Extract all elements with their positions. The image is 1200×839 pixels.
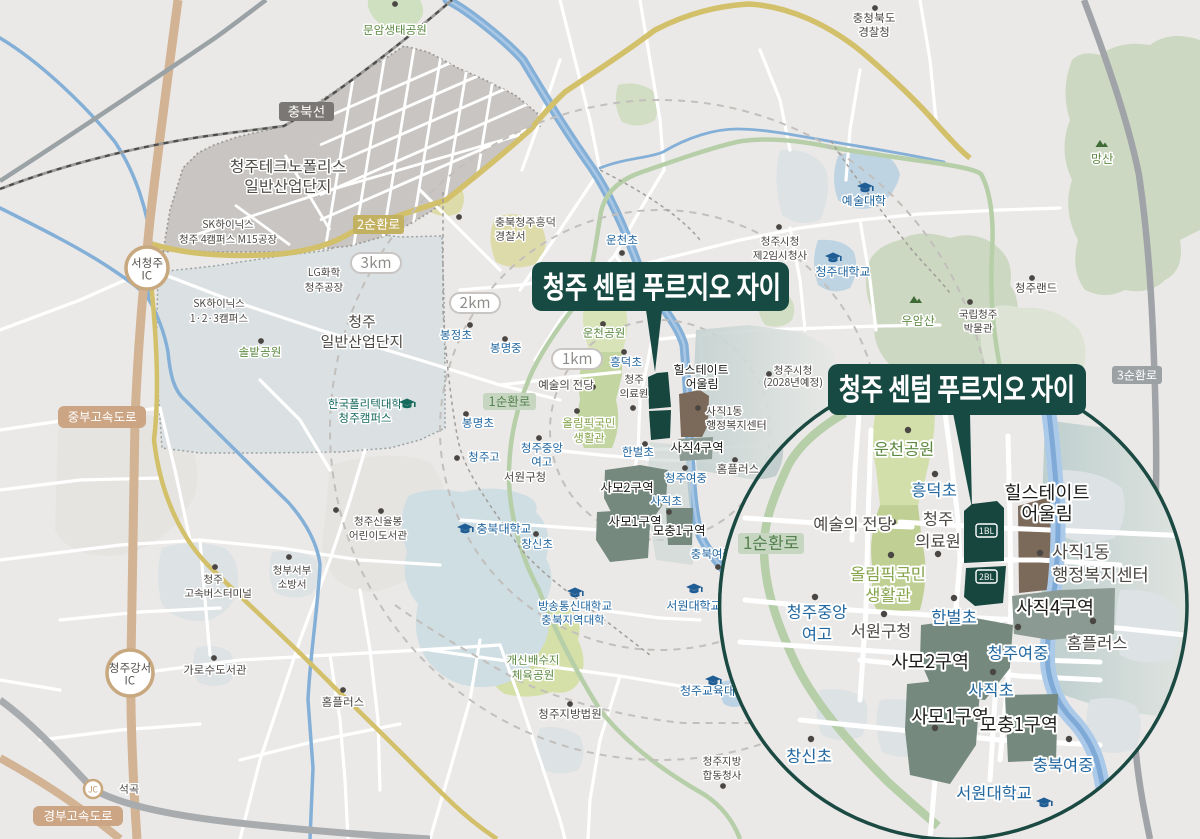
svg-text:운천공원: 운천공원 xyxy=(874,436,935,460)
svg-text:사모2구역: 사모2구역 xyxy=(601,477,654,496)
svg-text:일반산업단지: 일반산업단지 xyxy=(244,174,331,197)
svg-text:경부고속도로: 경부고속도로 xyxy=(43,806,112,825)
svg-text:청주여중: 청주여중 xyxy=(988,640,1049,664)
svg-text:생활관: 생활관 xyxy=(573,430,605,446)
svg-text:(2028년예정): (2028년예정) xyxy=(763,375,822,390)
svg-text:어린이도서관: 어린이도서관 xyxy=(349,528,407,543)
svg-text:충북여중: 충북여중 xyxy=(1033,752,1094,776)
svg-text:사모1구역: 사모1구역 xyxy=(911,703,989,729)
svg-text:합동청사: 합동청사 xyxy=(703,768,742,783)
svg-text:한벌초: 한벌초 xyxy=(931,604,977,628)
svg-text:충북대학교: 충북대학교 xyxy=(476,520,531,537)
svg-text:서원대학교: 서원대학교 xyxy=(666,597,721,614)
svg-text:IC: IC xyxy=(125,673,136,689)
svg-text:사직초: 사직초 xyxy=(650,493,682,509)
svg-text:한벌초: 한벌초 xyxy=(622,444,654,460)
svg-text:예술의 전당: 예술의 전당 xyxy=(813,511,893,535)
svg-text:SK하이닉스: SK하이닉스 xyxy=(202,217,254,232)
svg-text:청주고: 청주고 xyxy=(468,449,500,465)
svg-text:홈플러스: 홈플러스 xyxy=(322,694,364,710)
svg-text:청주: 청주 xyxy=(624,372,643,387)
svg-text:체육공원: 체육공원 xyxy=(512,667,554,683)
svg-text:청주시청: 청주시청 xyxy=(761,234,800,249)
svg-text:2BL: 2BL xyxy=(979,571,994,583)
svg-text:가로수도서관: 가로수도서관 xyxy=(183,662,247,678)
svg-text:행정복지센터: 행정복지센터 xyxy=(706,417,767,433)
svg-text:2km: 2km xyxy=(460,292,491,313)
svg-text:청주랜드: 청주랜드 xyxy=(1015,280,1057,296)
svg-text:제2임시청사: 제2임시청사 xyxy=(753,248,807,263)
svg-text:청주지방법원: 청주지방법원 xyxy=(538,706,601,722)
svg-text:모충1구역: 모충1구역 xyxy=(653,520,706,539)
svg-text:의료원: 의료원 xyxy=(915,528,961,552)
svg-text:청부서부: 청부서부 xyxy=(273,563,312,578)
svg-text:JC: JC xyxy=(88,784,98,796)
svg-text:행정복지센터: 행정복지센터 xyxy=(1052,562,1149,587)
svg-text:청주캠퍼스: 청주캠퍼스 xyxy=(339,410,392,426)
svg-text:석곡: 석곡 xyxy=(119,781,139,797)
svg-text:봉명초: 봉명초 xyxy=(462,415,494,431)
svg-text:홈플러스: 홈플러스 xyxy=(717,461,759,477)
svg-text:사직1동: 사직1동 xyxy=(1052,539,1110,564)
svg-text:창신초: 창신초 xyxy=(786,743,832,767)
svg-text:사모2구역: 사모2구역 xyxy=(891,648,969,674)
svg-text:고속버스터미널: 고속버스터미널 xyxy=(184,586,252,601)
svg-text:홈플러스: 홈플러스 xyxy=(1067,630,1128,654)
svg-text:서원대학교: 서원대학교 xyxy=(956,780,1032,804)
svg-text:LG화학: LG화학 xyxy=(308,265,341,280)
svg-text:흥덕초: 흥덕초 xyxy=(911,477,957,501)
svg-text:문암생태공원: 문암생태공원 xyxy=(363,22,426,38)
svg-text:일반산업단지: 일반산업단지 xyxy=(321,331,404,352)
svg-text:청주공장: 청주공장 xyxy=(305,280,344,295)
svg-text:충북선: 충북선 xyxy=(288,100,325,120)
svg-text:1·2·3캠퍼스: 1·2·3캠퍼스 xyxy=(190,311,248,326)
svg-text:청주 센텀 푸르지오 자이: 청주 센텀 푸르지오 자이 xyxy=(543,263,781,307)
svg-text:1BL: 1BL xyxy=(979,525,994,537)
svg-text:망산: 망산 xyxy=(1091,150,1113,167)
svg-text:개신배수지: 개신배수지 xyxy=(507,652,560,668)
svg-text:사직4구역: 사직4구역 xyxy=(671,437,724,456)
svg-text:서원구청: 서원구청 xyxy=(504,469,546,485)
svg-text:1순환로: 1순환로 xyxy=(743,529,799,554)
svg-text:봉정초: 봉정초 xyxy=(440,327,472,343)
svg-text:모충1구역: 모충1구역 xyxy=(980,711,1058,737)
svg-text:봉명중: 봉명중 xyxy=(490,340,522,356)
svg-text:경찰청: 경찰청 xyxy=(858,24,890,40)
svg-text:어울림: 어울림 xyxy=(685,375,718,392)
svg-text:생활관: 생활관 xyxy=(865,582,911,606)
svg-text:청주 센텀 푸르지오 자이: 청주 센텀 푸르지오 자이 xyxy=(839,365,1075,409)
svg-text:운천공원: 운천공원 xyxy=(583,325,625,341)
svg-text:IC: IC xyxy=(142,268,153,284)
svg-text:운천초: 운천초 xyxy=(606,232,638,248)
svg-text:청주중앙: 청주중앙 xyxy=(787,599,848,623)
svg-text:올림픽국민: 올림픽국민 xyxy=(563,415,616,431)
svg-text:청주 4캠퍼스 M15공장: 청주 4캠퍼스 M15공장 xyxy=(179,232,278,247)
svg-text:3km: 3km xyxy=(361,252,392,273)
svg-text:충북지역대학: 충북지역대학 xyxy=(541,612,605,628)
svg-text:SK하이닉스: SK하이닉스 xyxy=(193,296,245,311)
svg-text:솔밭공원: 솔밭공원 xyxy=(239,344,281,360)
svg-text:박물관: 박물관 xyxy=(964,321,993,336)
svg-text:서원구청: 서원구청 xyxy=(851,618,912,642)
svg-text:여고: 여고 xyxy=(802,621,832,645)
svg-text:사직초: 사직초 xyxy=(968,677,1014,701)
svg-text:3순환로: 3순환로 xyxy=(1117,366,1157,383)
svg-text:경찰서: 경찰서 xyxy=(495,228,525,244)
svg-text:청주신율봉: 청주신율봉 xyxy=(354,514,403,529)
svg-text:청주: 청주 xyxy=(348,311,376,332)
svg-text:1km: 1km xyxy=(562,348,593,369)
svg-text:청주: 청주 xyxy=(923,506,953,530)
svg-text:창신초: 창신초 xyxy=(521,536,553,552)
svg-text:청주대학교: 청주대학교 xyxy=(815,263,870,280)
svg-text:예술대학: 예술대학 xyxy=(842,192,886,209)
svg-text:흥덕초: 흥덕초 xyxy=(610,354,642,370)
svg-text:청주지방: 청주지방 xyxy=(703,754,742,769)
svg-text:우암산: 우암산 xyxy=(901,312,934,329)
svg-text:국립청주: 국립청주 xyxy=(959,307,998,322)
svg-text:어울림: 어울림 xyxy=(1021,500,1072,526)
svg-text:의료원: 의료원 xyxy=(620,386,649,401)
svg-text:사직4구역: 사직4구역 xyxy=(1016,594,1094,620)
svg-text:청주: 청주 xyxy=(203,572,222,587)
svg-text:중부고속도로: 중부고속도로 xyxy=(67,407,136,426)
svg-text:예술의 전당: 예술의 전당 xyxy=(538,377,594,393)
svg-text:소방서: 소방서 xyxy=(278,577,307,592)
svg-text:1순환로: 1순환로 xyxy=(489,391,530,410)
svg-text:2순환로: 2순환로 xyxy=(357,214,400,233)
svg-text:여고: 여고 xyxy=(531,454,552,470)
svg-text:청주여중: 청주여중 xyxy=(665,470,708,486)
